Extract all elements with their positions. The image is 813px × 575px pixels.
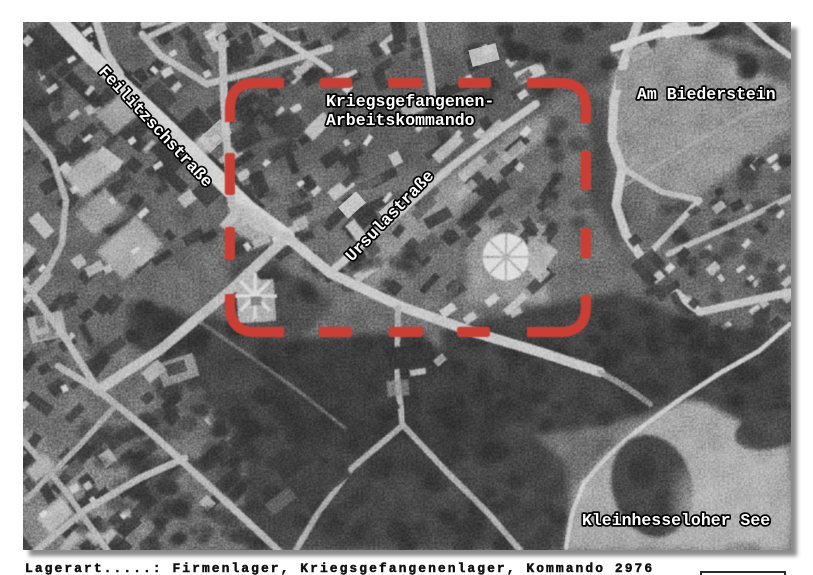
svg-text:Arbeitskommando: Arbeitskommando: [326, 111, 475, 130]
svg-text:Kriegsgefangenen-: Kriegsgefangenen-: [326, 92, 494, 111]
svg-text:Am Biederstein: Am Biederstein: [637, 85, 776, 104]
svg-text:Kleinhesseloher See: Kleinhesseloher See: [582, 511, 770, 530]
